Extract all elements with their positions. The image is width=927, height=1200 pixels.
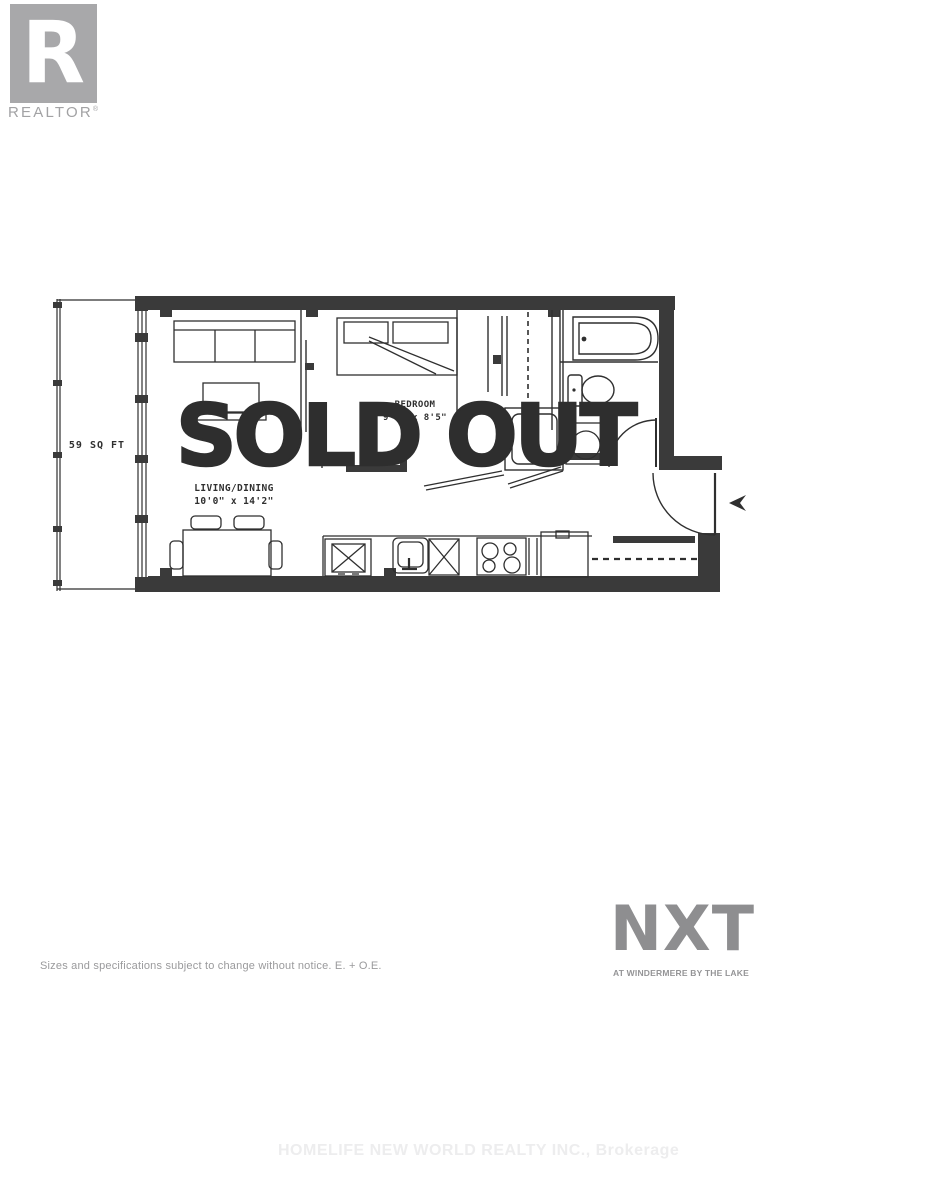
bed <box>337 318 457 375</box>
entry-arrow-icon <box>729 495 746 511</box>
flyer-page: R REALTOR® 59 SQ FT LIVING/DINING 10'0" … <box>0 0 927 1200</box>
realtor-wordmark: REALTOR® <box>8 104 118 121</box>
washer <box>325 539 371 576</box>
living-dining-dimensions: 10'0" x 14'2" <box>173 496 295 507</box>
disclaimer-text: Sizes and specifications subject to chan… <box>40 960 540 972</box>
sliding-door-handle <box>305 363 314 370</box>
bathtub <box>560 317 658 362</box>
nxt-tagline: AT WINDERMERE BY THE LAKE <box>613 968 813 978</box>
dishwasher <box>429 539 459 575</box>
balcony-area-label: 59 SQ FT <box>64 440 130 451</box>
sold-out-stamp: SOLD OUT <box>176 394 612 479</box>
dining-table <box>170 516 282 576</box>
kitchen-sink <box>393 538 428 573</box>
realtor-r-icon: R <box>22 11 85 96</box>
sofa <box>174 321 295 362</box>
stove <box>477 538 537 575</box>
nxt-logo: NXT <box>610 898 810 960</box>
floor-plan-svg <box>0 0 927 1200</box>
realtor-logo: R <box>10 4 97 103</box>
brokerage-watermark: HOMELIFE NEW WORLD REALTY INC., Brokerag… <box>278 1142 698 1160</box>
fridge <box>541 531 588 577</box>
registered-mark: ® <box>93 106 98 113</box>
entry-door <box>653 473 715 535</box>
